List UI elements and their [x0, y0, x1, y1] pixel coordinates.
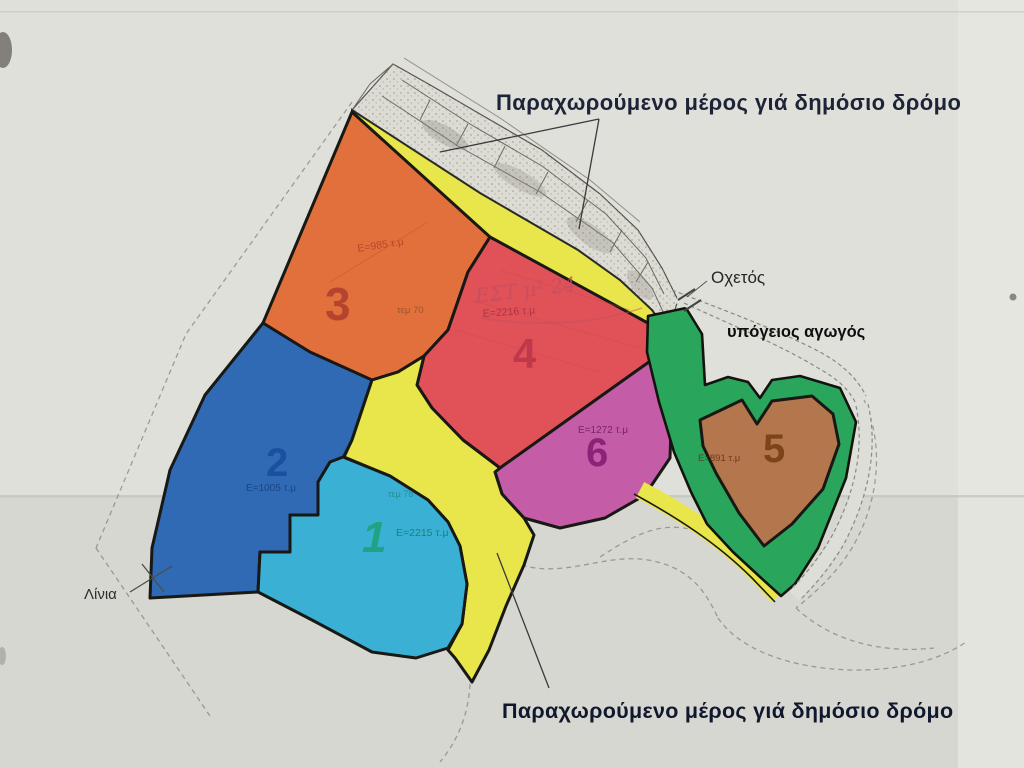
parcel-4-number: 4 — [513, 330, 537, 377]
place-label-linia: Λίνια — [84, 586, 117, 603]
map-canvas: 1 2 3 4 5 6 Ε=2215 τ.μ τεμ 78 Ε=1005 τ.μ… — [0, 0, 1024, 768]
parcel-3-ref-label: τεμ 70 — [397, 305, 424, 316]
parcel-1-number: 1 — [362, 513, 386, 562]
parcel-3-number: 3 — [325, 278, 351, 330]
pipe-label: υπόγειος αγωγός — [727, 323, 865, 341]
parcel-5-number: 5 — [763, 427, 785, 471]
paper-right-strip — [958, 0, 1024, 768]
parcel-1-area-label: Ε=2215 τ.μ — [396, 527, 449, 539]
scanned-plan-page: 1 2 3 4 5 6 Ε=2215 τ.μ τεμ 78 Ε=1005 τ.μ… — [0, 0, 1024, 768]
top-annotation: Παραχωρούμενο μέρος γιά δημόσιο δρόμο — [496, 90, 961, 115]
bottom-annotation: Παραχωρούμενο μέρος γιά δημόσιο δρόμο — [502, 699, 953, 723]
parcel-1-ref-label: τεμ 78 — [388, 489, 413, 499]
parcel-6-area-label: Ε=1272 τ.μ — [578, 425, 628, 436]
parcel-2-number: 2 — [266, 441, 288, 485]
parcel-5-area-label: Ε=891 τ.μ — [698, 453, 740, 464]
crease-line-top — [0, 11, 1024, 13]
parcel-6-number: 6 — [586, 431, 608, 475]
parcel-2-area-label: Ε=1005 τ.μ — [246, 483, 296, 494]
culvert-label: Οχετός — [711, 268, 765, 287]
